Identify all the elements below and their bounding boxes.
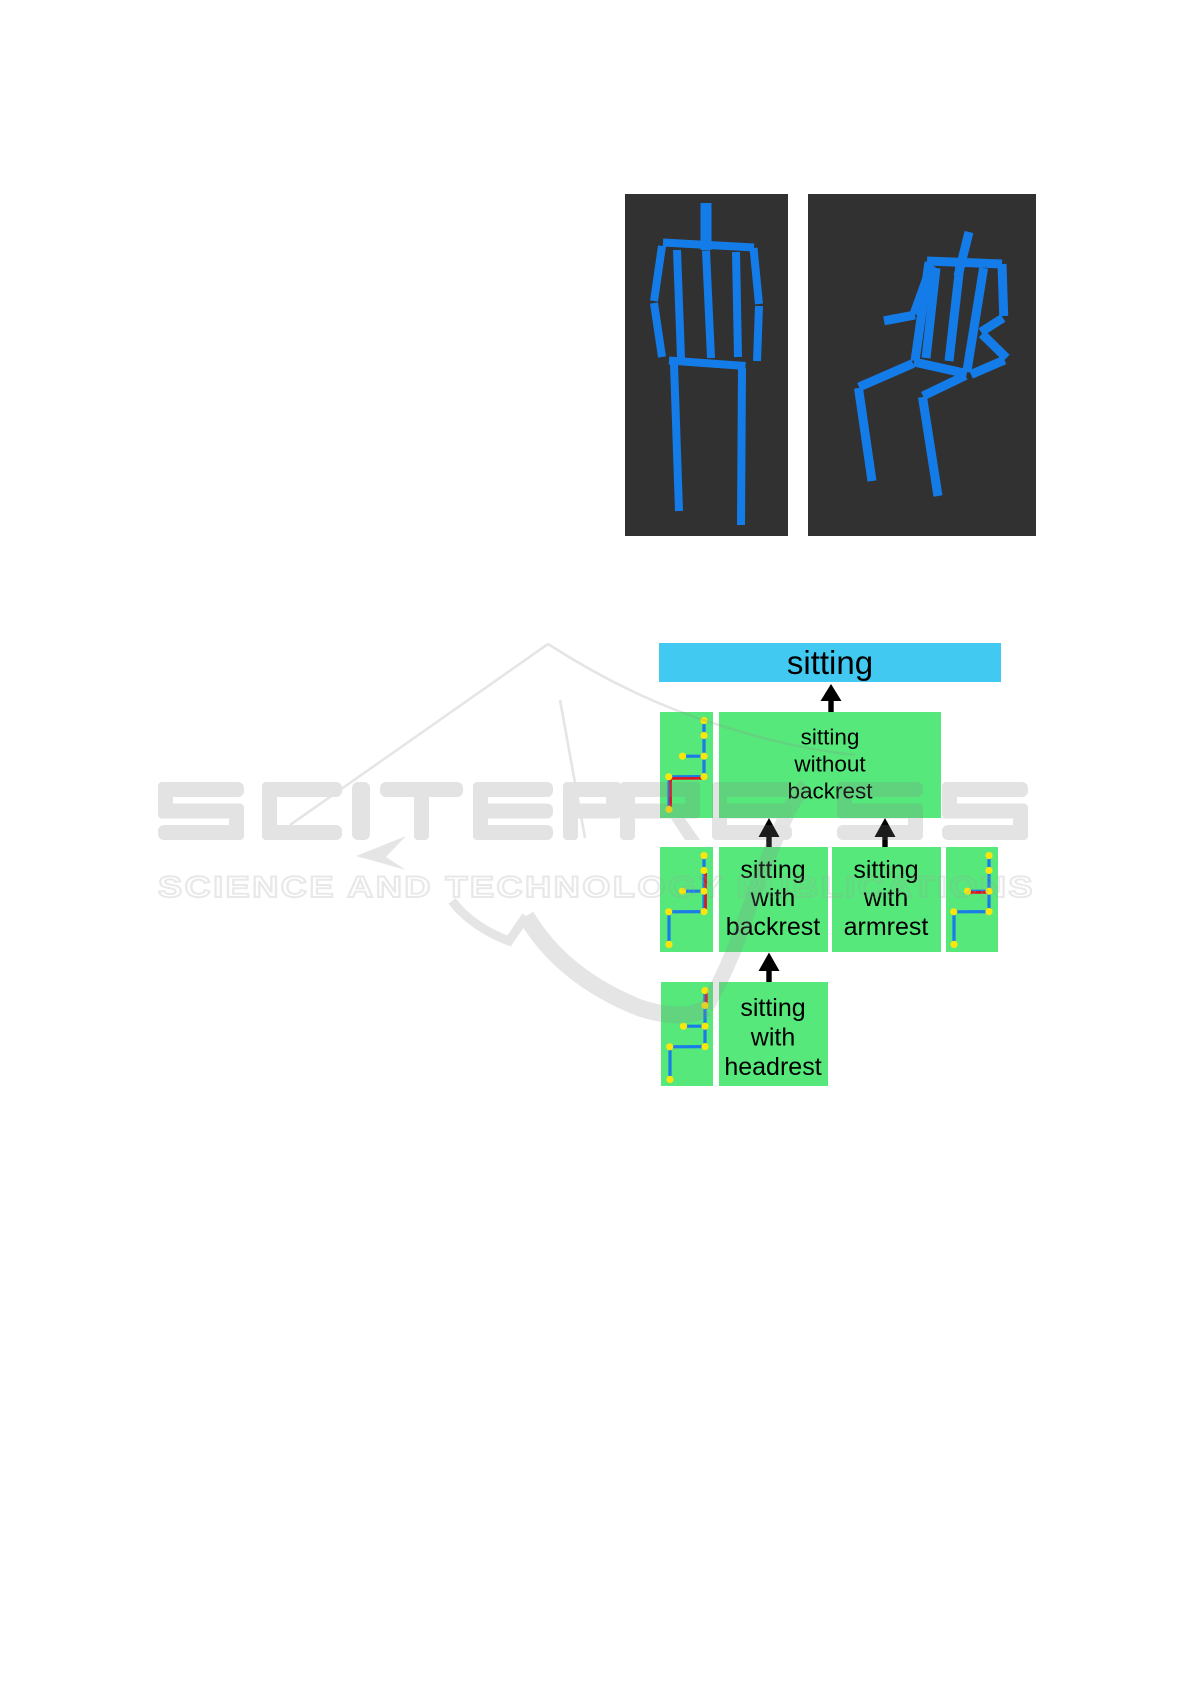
- svg-text:armrest: armrest: [844, 913, 929, 941]
- svg-text:with: with: [750, 1024, 795, 1052]
- svg-text:sitting: sitting: [801, 725, 860, 750]
- svg-text:headrest: headrest: [724, 1053, 821, 1081]
- svg-text:SCIENCE AND TECHNOLOGY PUBLICA: SCIENCE AND TECHNOLOGY PUBLICATIONS: [158, 871, 1035, 904]
- svg-text:sitting: sitting: [787, 644, 873, 681]
- svg-text:without: without: [793, 752, 866, 777]
- svg-text:sitting: sitting: [740, 994, 805, 1022]
